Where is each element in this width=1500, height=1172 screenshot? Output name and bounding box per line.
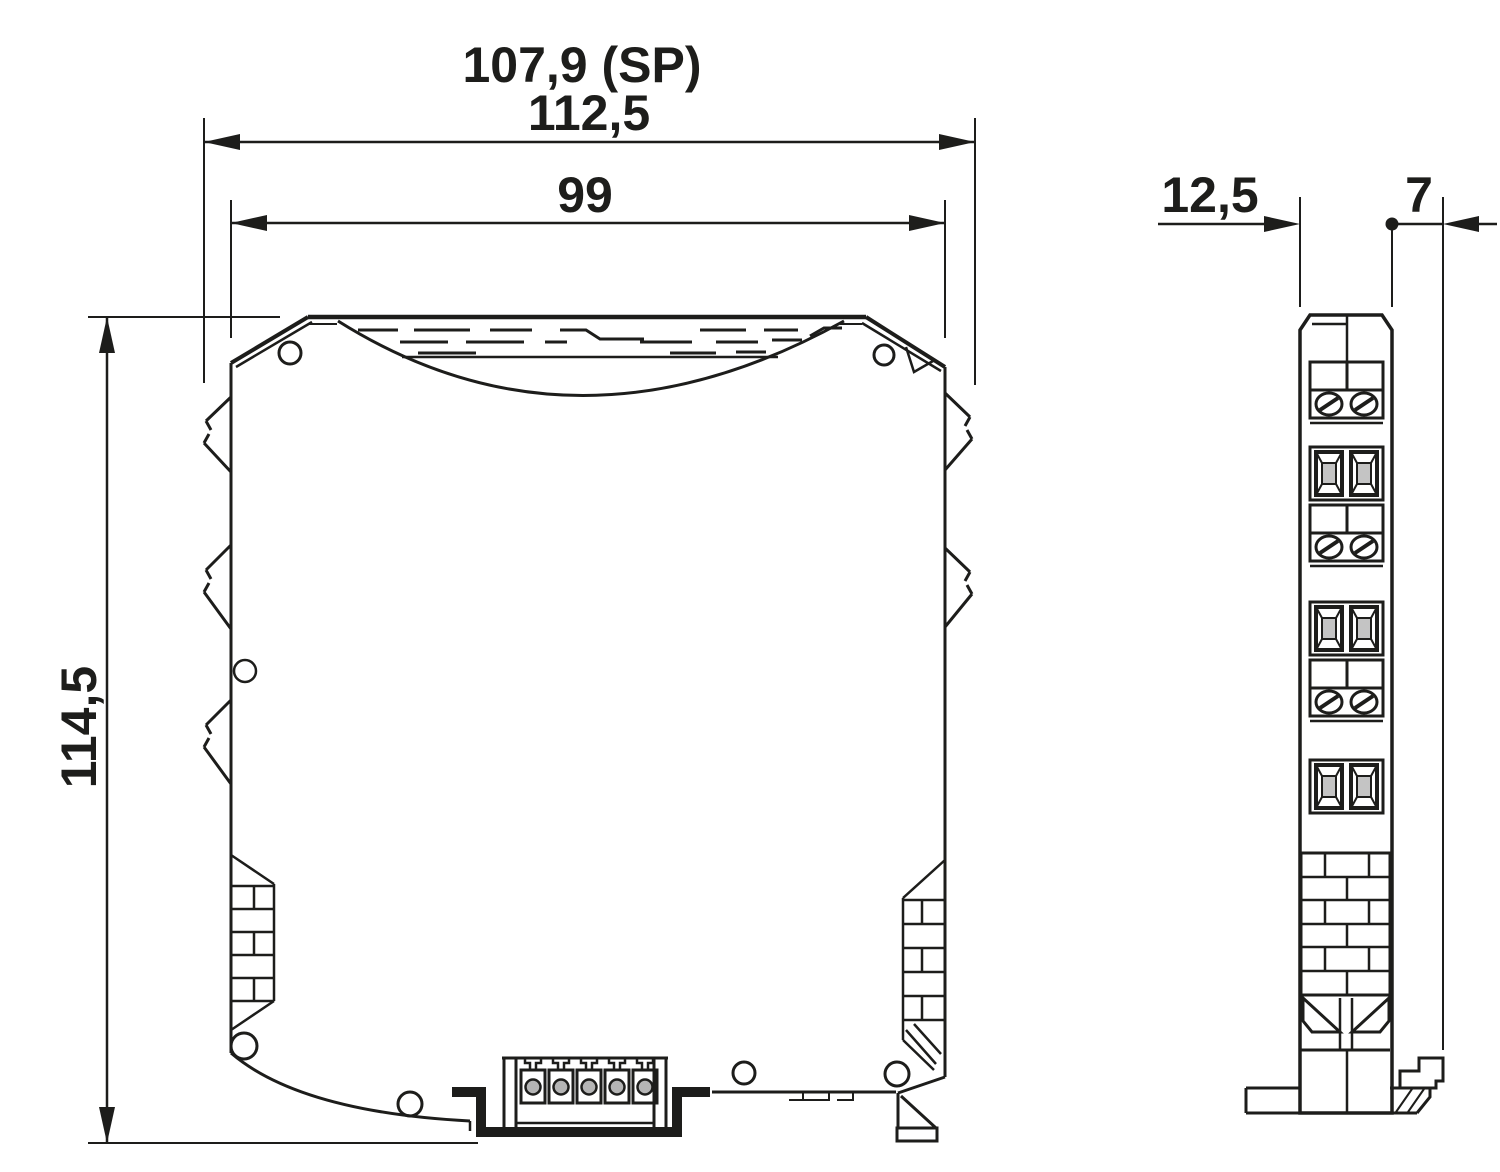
dimension-height: 114,5 <box>51 317 478 1143</box>
dim-label-housing-width: 99 <box>557 167 613 223</box>
front-top-label-band <box>338 321 844 396</box>
screw-hole <box>733 1062 755 1084</box>
din-rail-slider <box>897 1128 937 1141</box>
connector-channel <box>452 1092 710 1132</box>
clamp-terminal-groups <box>1310 447 1383 813</box>
connector-pin <box>605 1058 629 1103</box>
side-brick-section <box>1301 853 1390 995</box>
dimension-housing-width: 99 <box>231 167 945 338</box>
connector-pin <box>549 1058 573 1103</box>
connector-pins <box>521 1058 657 1103</box>
side-latch-section <box>1301 998 1390 1113</box>
dimension-side-width: 12,5 <box>1158 167 1392 307</box>
connector-pin <box>577 1058 601 1103</box>
side-view <box>1246 315 1443 1113</box>
dimensional-drawing: 107,9 (SP) 112,5 99 114,5 12,5 7 <box>0 0 1500 1172</box>
bus-connector <box>452 1058 710 1132</box>
screw-hole <box>279 342 301 364</box>
screw-hole <box>874 345 894 365</box>
screw-hole <box>885 1062 909 1086</box>
screw-terminal-groups <box>1310 362 1383 721</box>
screw-hole <box>234 660 256 682</box>
right-vent-grille <box>903 860 945 1070</box>
dim-label-rear-depth: 7 <box>1405 167 1433 223</box>
front-housing-outline <box>231 317 945 1077</box>
connector-pin <box>521 1058 545 1103</box>
dimension-rear-depth: 7 <box>1386 167 1498 1050</box>
din-rail-foot <box>1400 1058 1443 1088</box>
screw-hole <box>398 1092 422 1116</box>
dim-label-overall-width: 112,5 <box>528 85 650 141</box>
front-screw-holes <box>231 342 933 1116</box>
dim-label-side-width: 12,5 <box>1161 167 1258 223</box>
dim-label-height: 114,5 <box>51 666 107 788</box>
din-rail <box>1246 1058 1443 1113</box>
right-latch-tabs <box>945 393 972 627</box>
front-view <box>204 317 972 1141</box>
left-vent-grille <box>231 855 274 1030</box>
left-latch-tabs <box>204 397 231 784</box>
